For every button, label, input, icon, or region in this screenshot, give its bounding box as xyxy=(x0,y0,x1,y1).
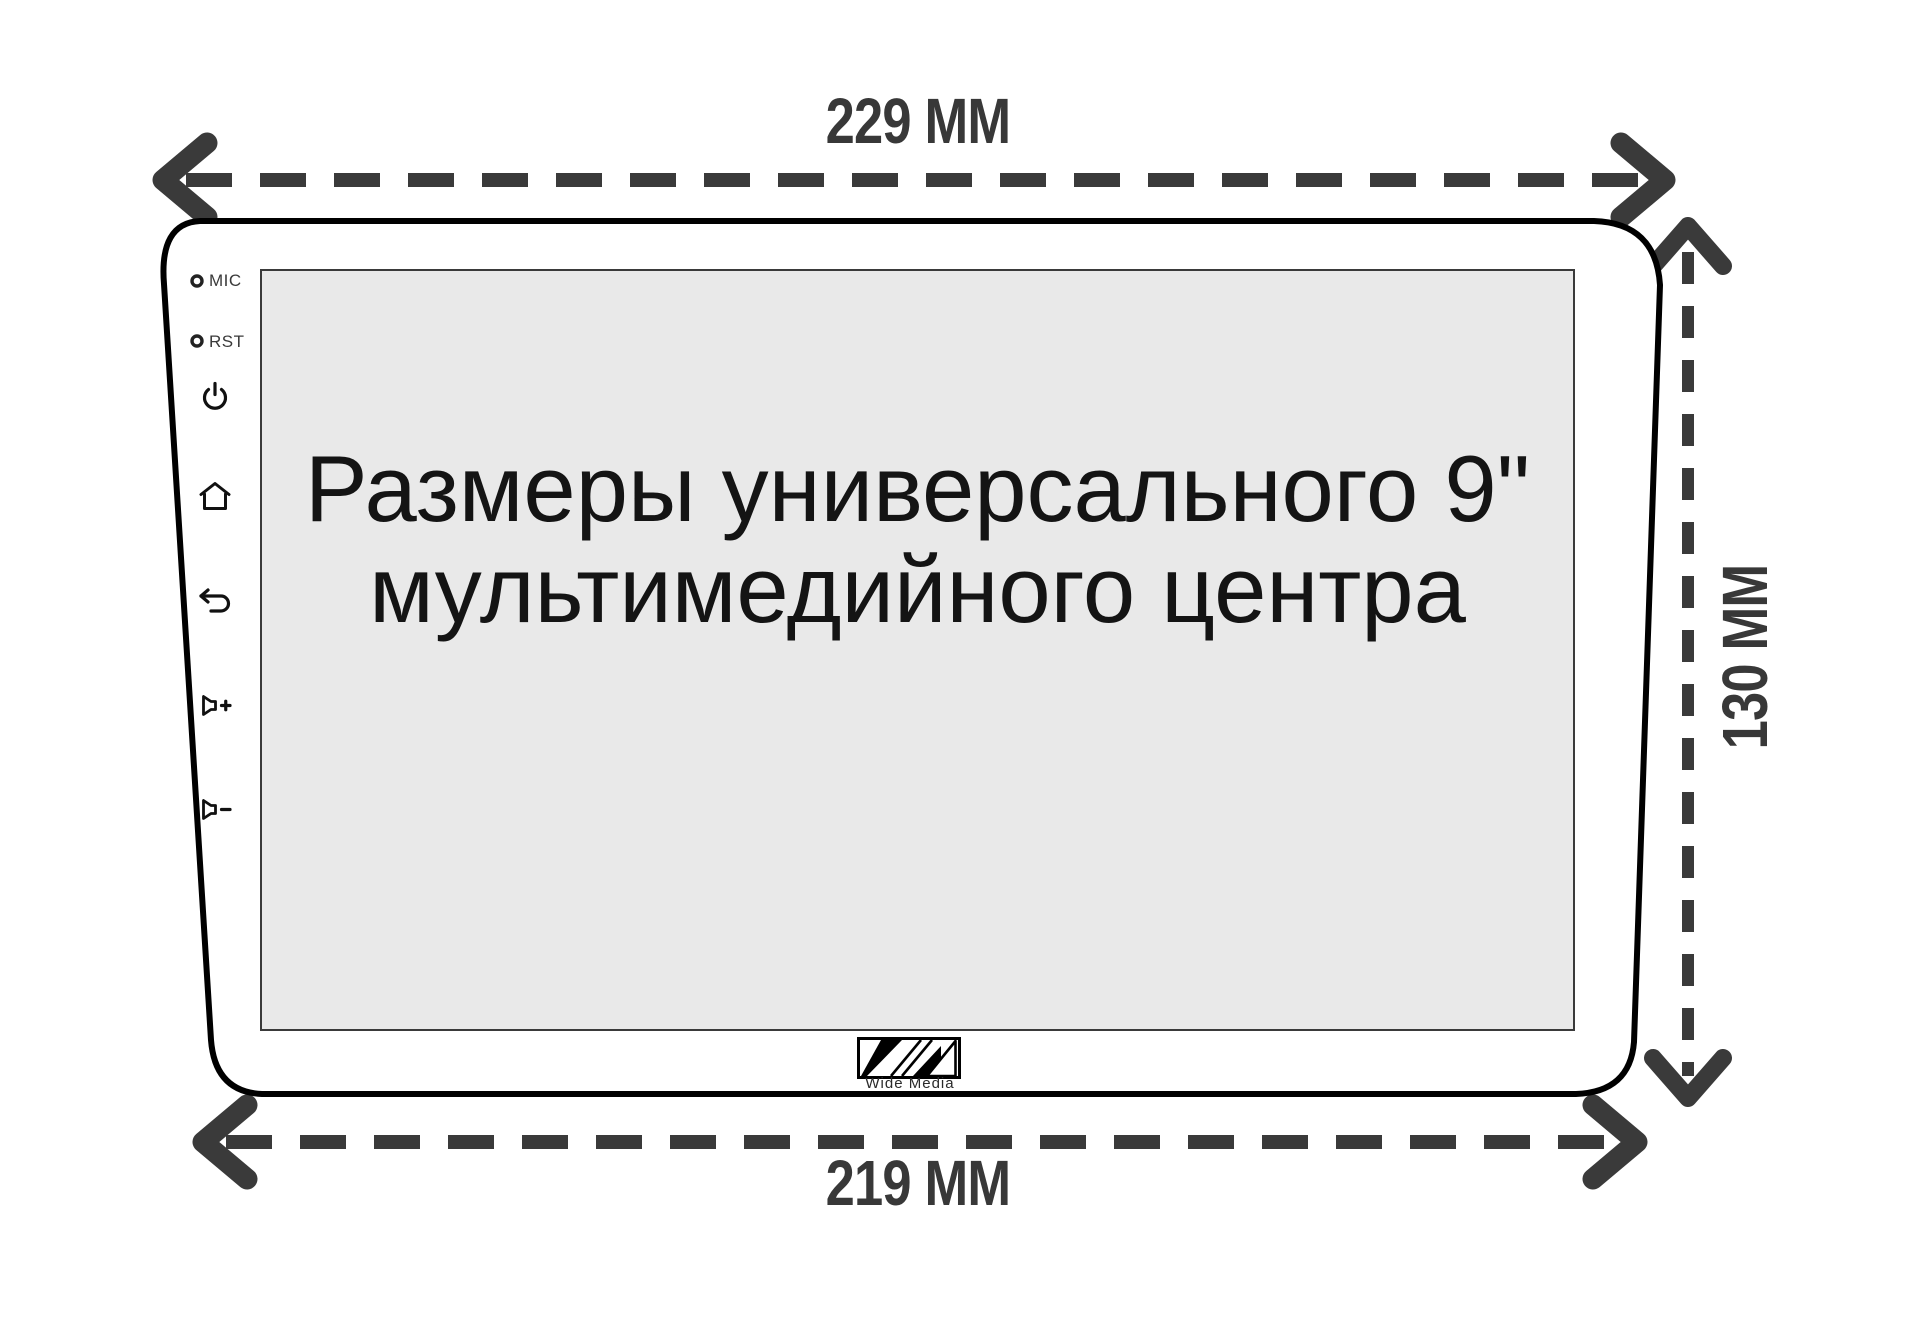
mic-label: MIC xyxy=(209,272,242,290)
rst-label: RST xyxy=(209,333,245,351)
screen-caption-line2: мультимедийного центра xyxy=(261,539,1574,640)
wide-media-logo-text: Wide Media xyxy=(838,1076,982,1092)
side-height-label: 130 MM xyxy=(1710,534,1780,780)
top-width-label: 229 MM xyxy=(787,86,1049,156)
screen-caption: Размеры универсального 9" мультимедийног… xyxy=(261,438,1574,640)
device-screen xyxy=(261,270,1574,1030)
diagram-canvas: 229 MM 219 MM 130 MM Размеры универсальн… xyxy=(0,0,1920,1318)
dimension-diagram xyxy=(0,0,1920,1318)
bottom-width-label: 219 MM xyxy=(787,1148,1049,1218)
screen-caption-line1: Размеры универсального 9" xyxy=(261,438,1574,539)
wide-media-logo-mark xyxy=(859,1039,960,1078)
